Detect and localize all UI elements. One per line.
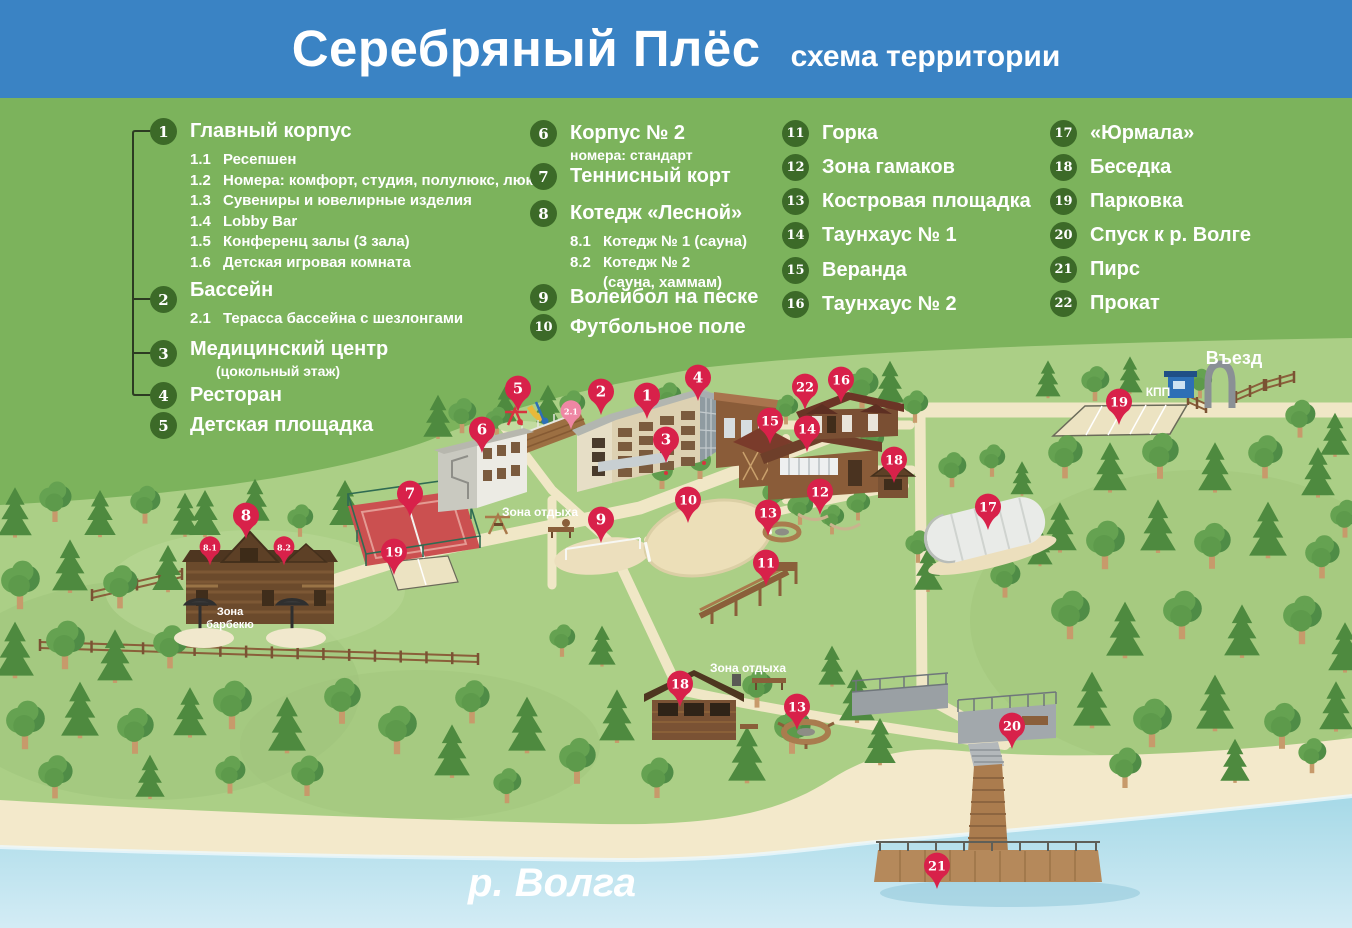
map-label-river: р. Волга [467,861,636,905]
svg-text:16: 16 [832,374,850,389]
svg-text:19: 19 [385,546,403,561]
svg-text:13: 13 [759,507,777,522]
svg-text:18: 18 [885,454,903,469]
svg-text:17: 17 [979,501,997,516]
svg-text:19: 19 [1110,396,1128,411]
page-title: Серебряный Плёс [292,0,761,98]
resort-map-svg: 122.13456788.18.291011121313141516171818… [0,0,1352,928]
svg-text:2.1: 2.1 [564,407,578,417]
svg-text:15: 15 [761,415,779,430]
svg-text:20: 20 [1003,720,1021,735]
territory-map-page: 122.13456788.18.291011121313141516171818… [0,0,1352,928]
svg-text:10: 10 [679,494,697,509]
svg-text:13: 13 [788,701,806,716]
svg-text:1: 1 [642,387,652,405]
page-header: Серебряный Плёс схема территории [0,0,1352,98]
svg-text:9: 9 [596,511,606,529]
page-subtitle: схема территории [791,40,1061,74]
svg-text:4: 4 [693,369,703,387]
svg-text:6: 6 [477,421,487,439]
map-label-rest-zone-2: Зона отдыха [710,661,786,675]
svg-text:2: 2 [596,383,606,401]
svg-text:12: 12 [811,486,829,501]
svg-text:7: 7 [405,485,415,503]
svg-text:8: 8 [241,507,251,525]
svg-text:21: 21 [928,860,946,875]
svg-text:22: 22 [796,381,814,396]
svg-text:14: 14 [798,423,816,438]
map-label-entrance: Въезд [1206,348,1263,368]
svg-text:11: 11 [757,557,775,572]
map-label-rest-zone-1: Зона отдыха [502,505,578,519]
svg-text:18: 18 [671,678,689,693]
svg-text:5: 5 [513,380,523,398]
svg-text:8.2: 8.2 [277,543,291,553]
svg-text:3: 3 [661,431,671,449]
map-label-checkpoint: КПП [1146,385,1171,399]
svg-text:8.1: 8.1 [203,543,217,553]
